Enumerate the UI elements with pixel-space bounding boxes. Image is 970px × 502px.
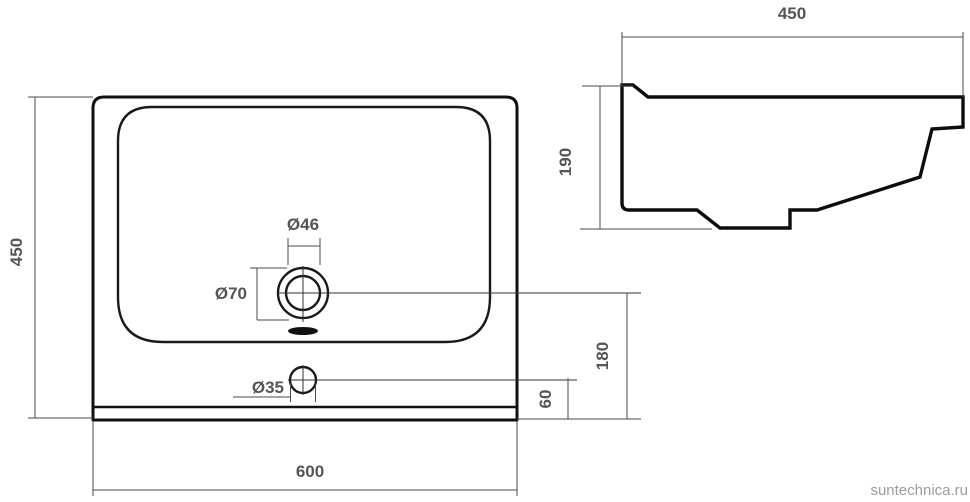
side-view: [622, 85, 963, 228]
dim-d70-label: Ø70: [215, 284, 247, 303]
side-view-dimensions: 450 190: [556, 4, 963, 229]
dim-190-label: 190: [556, 148, 575, 176]
drawing-canvas: 450 600 Ø46 Ø70 Ø35 180 60: [0, 0, 970, 502]
watermark-text: suntechnica.ru: [870, 482, 968, 499]
dim-d46-label: Ø46: [287, 215, 319, 234]
front-view-dimensions: 450 600 Ø46 Ø70 Ø35 180 60: [7, 97, 641, 496]
dim-450-left-label: 450: [7, 238, 26, 266]
front-outer-body: [93, 97, 517, 420]
dim-d35-label: Ø35: [252, 378, 284, 397]
overflow-slot: [288, 327, 318, 335]
washbasin-technical-drawing: 450 600 Ø46 Ø70 Ø35 180 60: [0, 0, 970, 502]
dim-450-top-label: 450: [778, 4, 806, 23]
front-view: [93, 97, 641, 420]
side-profile: [622, 85, 963, 228]
dim-60-label: 60: [536, 390, 555, 409]
dim-180-label: 180: [593, 342, 612, 370]
dim-600-label: 600: [296, 462, 324, 481]
